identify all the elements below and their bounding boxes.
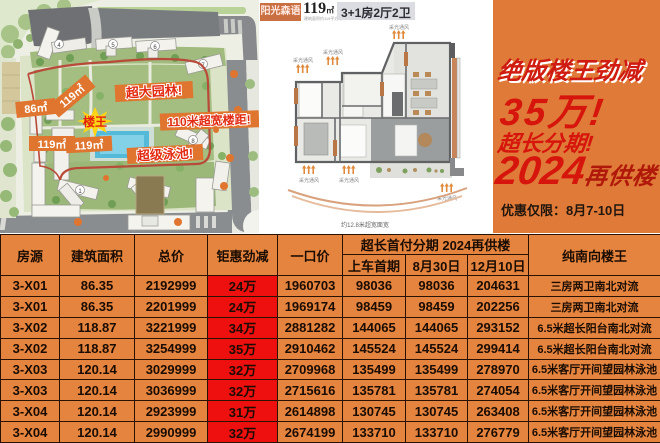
svg-text:采光通风: 采光通风 <box>299 177 319 184</box>
svg-text:超级泳池!: 超级泳池! <box>137 146 194 164</box>
svg-text:119㎡: 119㎡ <box>74 137 103 152</box>
svg-text:110米超宽楼距!: 110米超宽楼距! <box>167 112 251 130</box>
svg-text:采光通风: 采光通风 <box>339 177 359 184</box>
svg-text:119㎡: 119㎡ <box>38 137 67 151</box>
svg-text:采光通风: 采光通风 <box>389 24 409 31</box>
svg-text:超大园林!: 超大园林! <box>125 83 182 101</box>
svg-text:楼王: 楼王 <box>83 114 107 129</box>
svg-text:采光通风: 采光通风 <box>323 49 343 56</box>
svg-text:约12.8米超宽面宽: 约12.8米超宽面宽 <box>341 221 389 229</box>
svg-text:采光通风: 采光通风 <box>293 57 313 64</box>
